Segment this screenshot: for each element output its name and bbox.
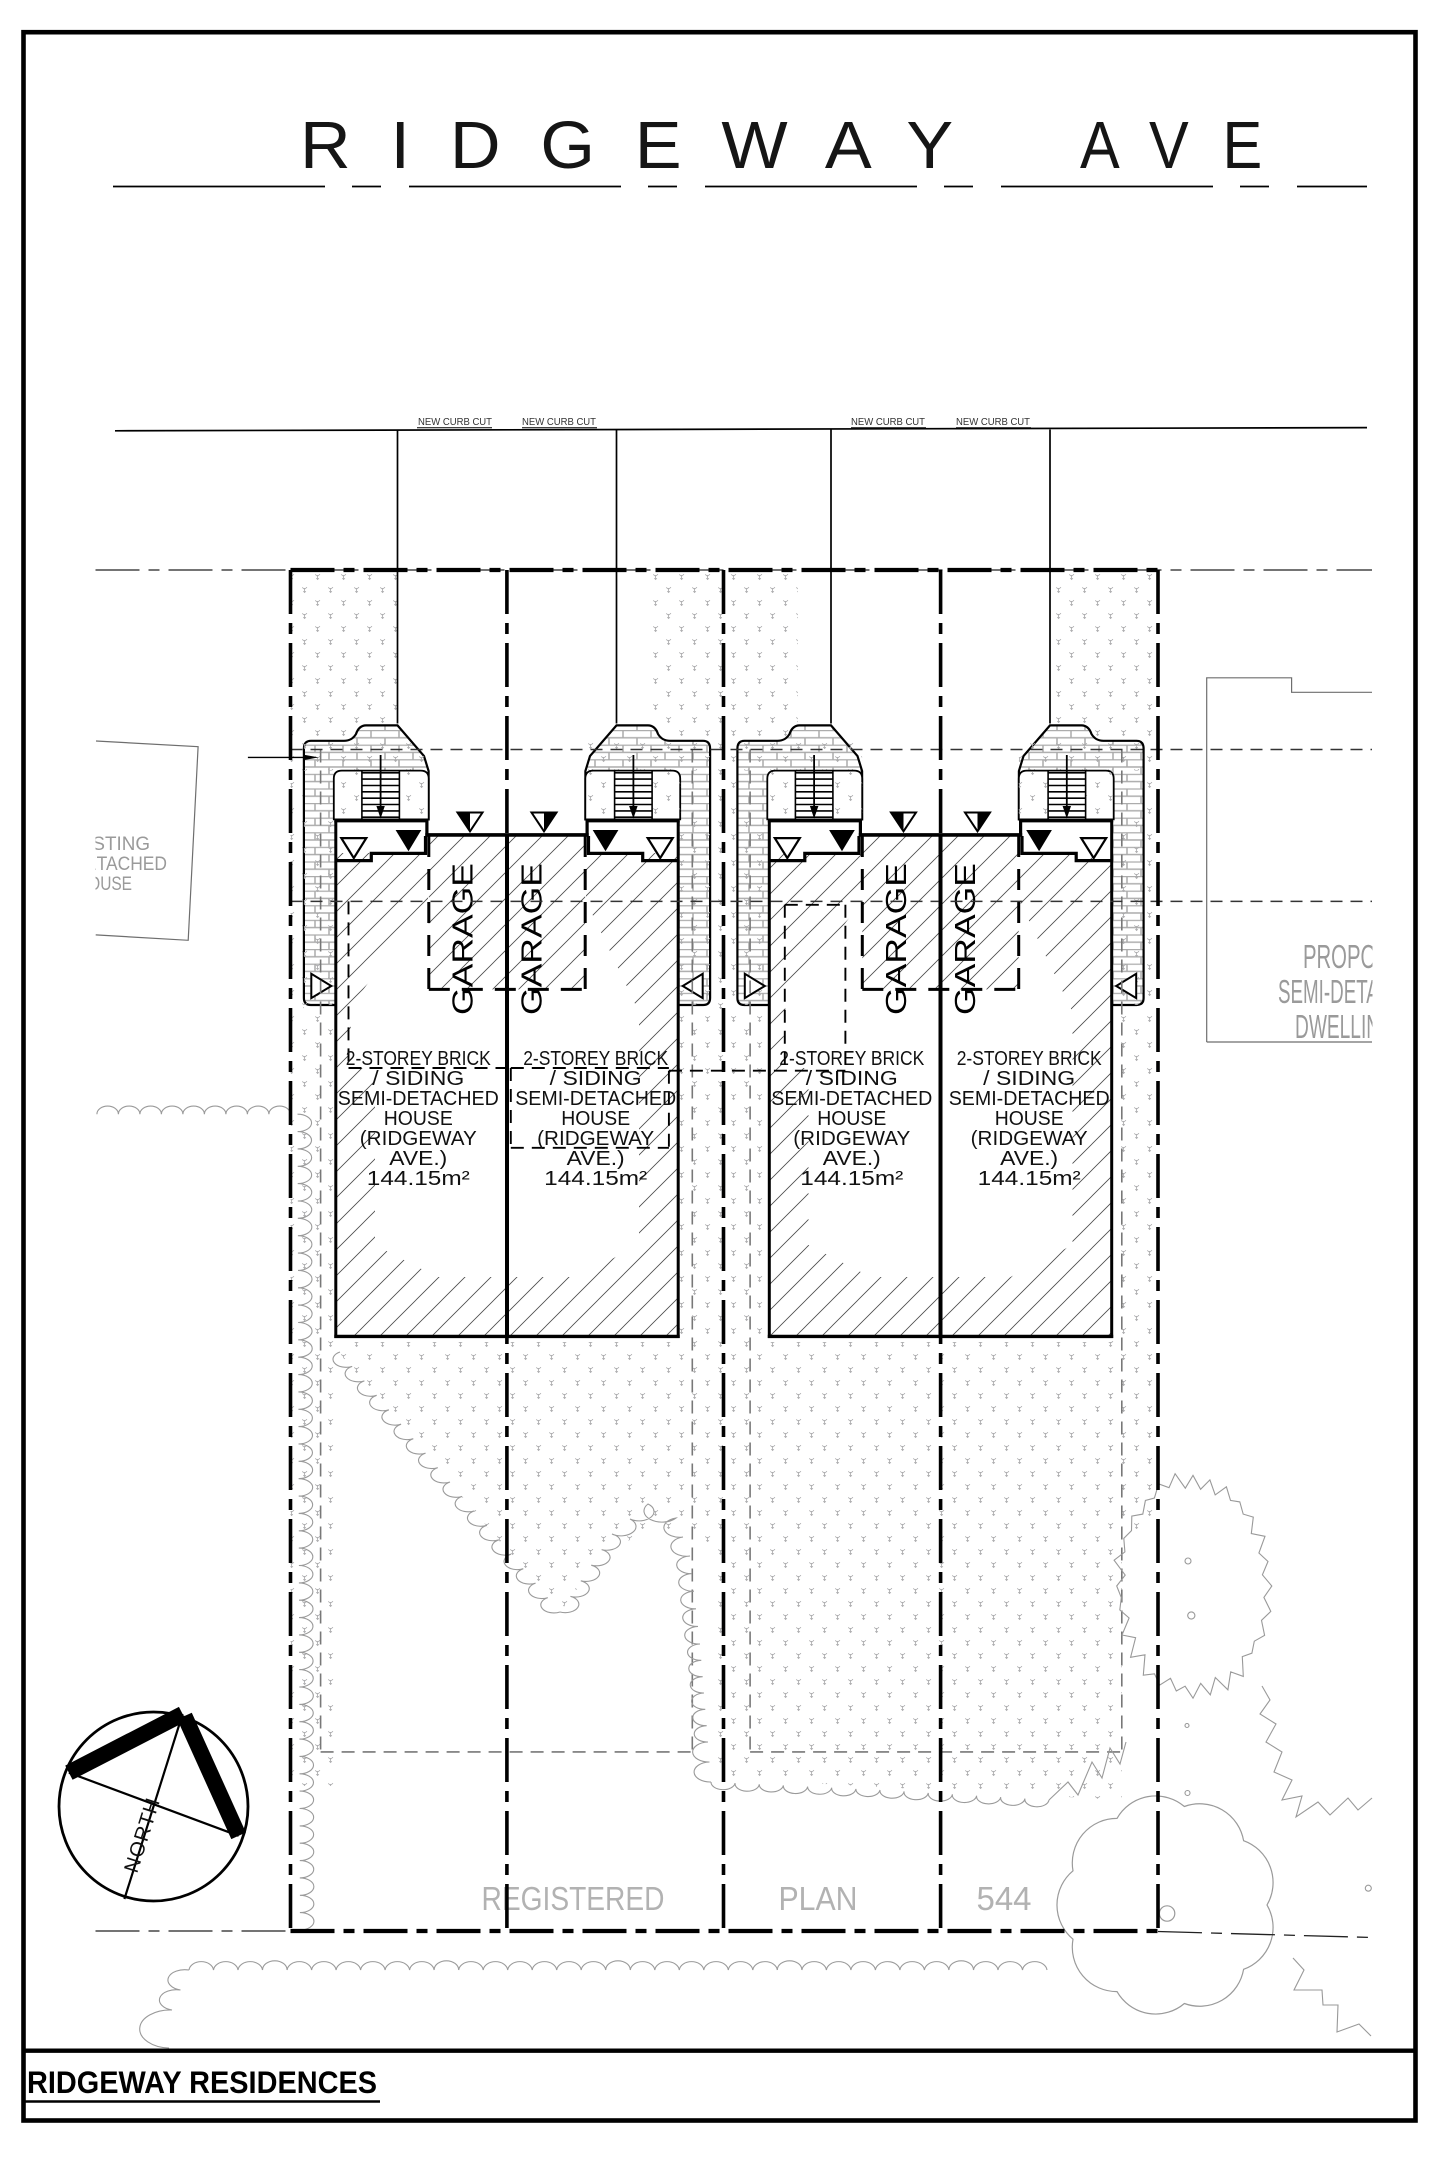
svg-text:NEW CURB CUT: NEW CURB CUT [956, 416, 1031, 428]
svg-text:SEMI-DETACHED: SEMI-DETACHED [338, 1088, 499, 1110]
svg-text:(RIDGEWAY: (RIDGEWAY [360, 1128, 477, 1150]
svg-text:GARAGE: GARAGE [448, 863, 480, 1015]
svg-text:HOUSE: HOUSE [561, 1108, 630, 1130]
svg-text:NEW CURB CUT: NEW CURB CUT [418, 416, 493, 428]
svg-text:RIDGEWAY: RIDGEWAY [300, 108, 993, 183]
svg-text:144.15m²: 144.15m² [800, 1168, 903, 1190]
svg-text:AVE.): AVE.) [389, 1148, 447, 1170]
svg-text:544: 544 [977, 1880, 1032, 1917]
svg-text:AVE.): AVE.) [1000, 1148, 1058, 1170]
svg-text:144.15m²: 144.15m² [544, 1168, 647, 1190]
svg-text:2-STOREY BRICK: 2-STOREY BRICK [346, 1048, 492, 1070]
svg-text:HOUSE: HOUSE [995, 1108, 1064, 1130]
svg-text:2-STOREY BRICK: 2-STOREY BRICK [957, 1048, 1103, 1070]
svg-text:AVE.): AVE.) [567, 1148, 625, 1170]
svg-text:NEW CURB CUT: NEW CURB CUT [522, 416, 597, 428]
svg-text:(RIDGEWAY: (RIDGEWAY [793, 1128, 910, 1150]
svg-text:/ SIDING: / SIDING [372, 1068, 464, 1090]
svg-text:PLAN: PLAN [779, 1880, 858, 1917]
svg-text:RIDGEWAY RESIDENCES: RIDGEWAY RESIDENCES [27, 2064, 377, 2100]
svg-text:(RIDGEWAY: (RIDGEWAY [971, 1128, 1088, 1150]
svg-text:HOUSE: HOUSE [817, 1108, 886, 1130]
svg-text:144.15m²: 144.15m² [367, 1168, 470, 1190]
svg-text:GARAGE: GARAGE [950, 863, 982, 1015]
svg-text:SEMI-DETACHED: SEMI-DETACHED [771, 1088, 932, 1110]
svg-text:NEW CURB CUT: NEW CURB CUT [851, 416, 926, 428]
svg-text:SEMI-DETACHED: SEMI-DETACHED [949, 1088, 1110, 1110]
svg-text:/ SIDING: / SIDING [550, 1068, 642, 1090]
svg-text:GARAGE: GARAGE [881, 863, 913, 1015]
svg-text:2-STOREY BRICK: 2-STOREY BRICK [779, 1048, 925, 1070]
svg-text:2-STOREY BRICK: 2-STOREY BRICK [523, 1048, 669, 1070]
svg-text:AVE.): AVE.) [823, 1148, 881, 1170]
svg-text:AVE: AVE [1080, 108, 1296, 183]
svg-text:144.15m²: 144.15m² [978, 1168, 1081, 1190]
svg-text:/ SIDING: / SIDING [983, 1068, 1075, 1090]
svg-text:(RIDGEWAY: (RIDGEWAY [537, 1128, 654, 1150]
svg-text:REGISTERED: REGISTERED [482, 1880, 665, 1917]
svg-text:HOUSE: HOUSE [384, 1108, 453, 1130]
svg-text:GARAGE: GARAGE [516, 863, 548, 1015]
svg-text:SEMI-DETACHED: SEMI-DETACHED [515, 1088, 676, 1110]
